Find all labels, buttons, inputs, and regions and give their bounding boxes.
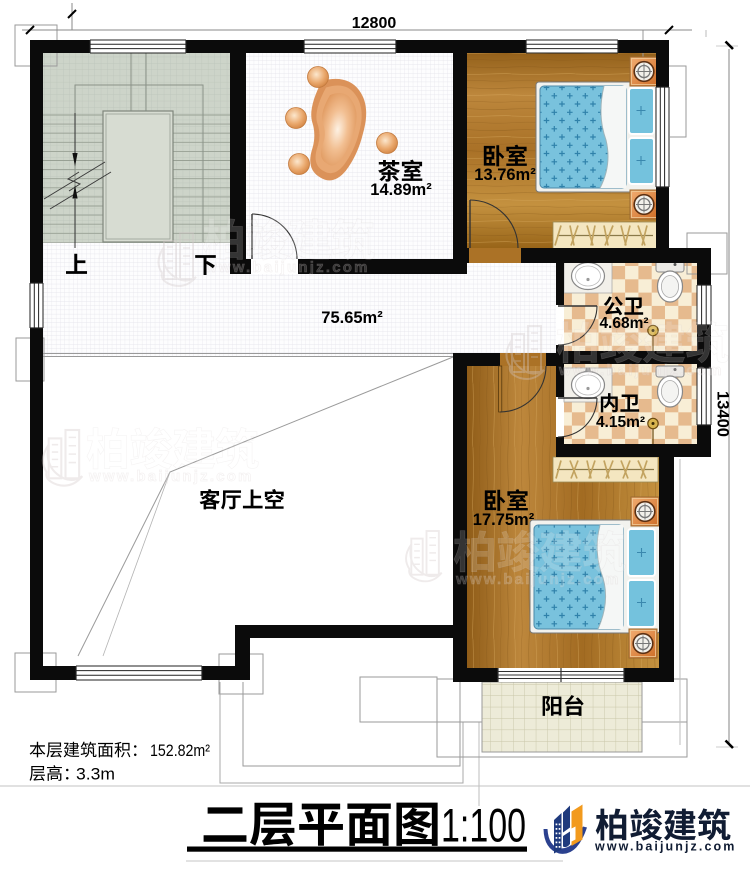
svg-text:4.68m²: 4.68m² (599, 315, 648, 332)
svg-text:17.75m²: 17.75m² (473, 511, 535, 529)
svg-text:www.baijunjz.com: www.baijunjz.com (558, 362, 724, 379)
svg-text:14.89m²: 14.89m² (370, 181, 432, 199)
svg-text:75.65m²: 75.65m² (321, 309, 383, 327)
svg-text:www.baijunjz.com: www.baijunjz.com (204, 259, 370, 276)
svg-text:1:100: 1:100 (441, 799, 526, 852)
svg-text:4.15m²: 4.15m² (596, 414, 645, 431)
svg-text:13.76m²: 13.76m² (474, 166, 536, 184)
svg-text:152.82m²: 152.82m² (150, 741, 210, 760)
svg-text:www.baijunjz.com: www.baijunjz.com (594, 840, 736, 854)
svg-text:12800: 12800 (352, 15, 397, 32)
svg-text:3.3m: 3.3m (76, 765, 115, 784)
svg-text:www.baijunjz.com: www.baijunjz.com (88, 468, 254, 485)
svg-text:13400: 13400 (714, 391, 732, 437)
svg-text:www.baijunjz.com: www.baijunjz.com (455, 571, 621, 588)
